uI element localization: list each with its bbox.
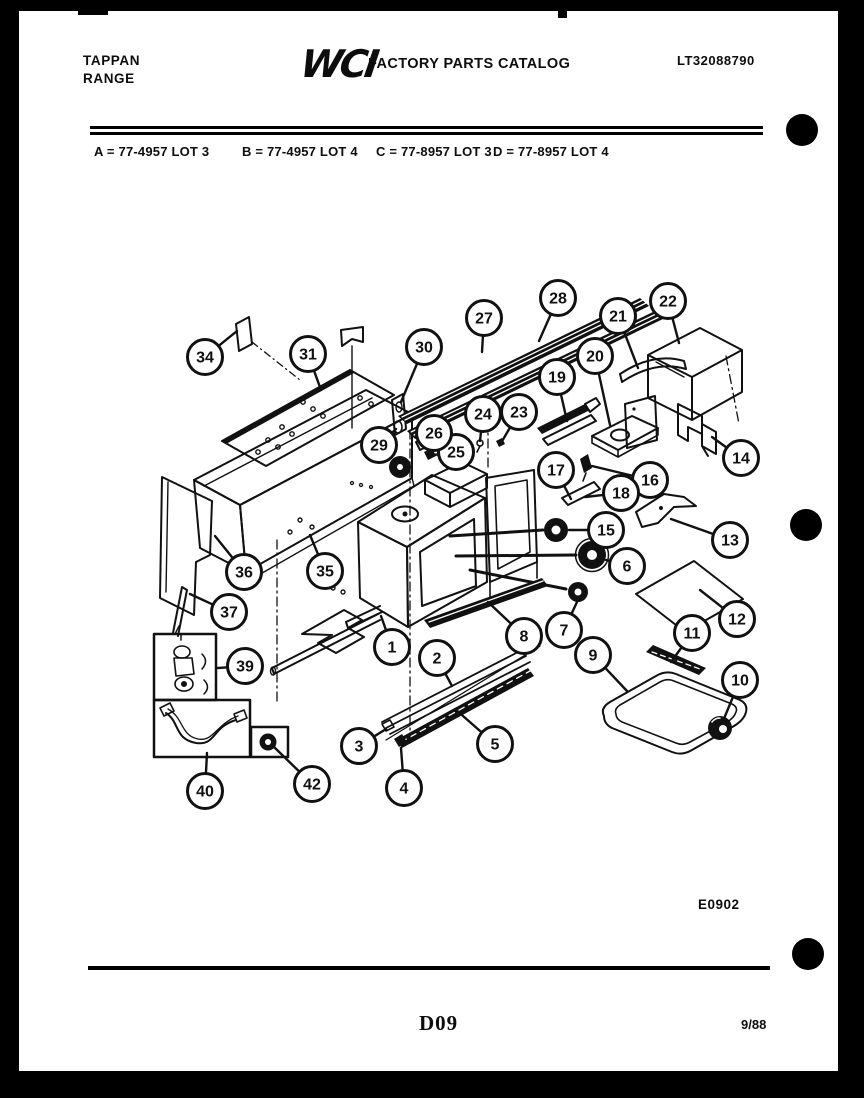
callout-leader-9 — [605, 668, 627, 691]
bracket-20 — [592, 396, 658, 457]
callout-leader-4 — [401, 748, 403, 771]
svg-text:42: 42 — [303, 777, 321, 794]
svg-text:14: 14 — [732, 451, 750, 468]
svg-text:4: 4 — [400, 781, 409, 798]
svg-text:2: 2 — [433, 651, 442, 668]
svg-text:36: 36 — [235, 565, 253, 582]
bolt-16 — [580, 454, 592, 481]
callout-leader-8 — [488, 602, 511, 624]
figure-code: E0902 — [698, 897, 740, 912]
catalog-page: TAPPAN RANGE WCI FACTORY PARTS CATALOG L… — [0, 0, 864, 1098]
callout-leader-36 — [215, 536, 233, 558]
callout-35: 35 — [308, 554, 343, 589]
callout-8: 8 — [507, 619, 542, 654]
callout-21: 21 — [601, 299, 636, 334]
callout-4: 4 — [387, 771, 422, 806]
svg-text:11: 11 — [684, 626, 701, 643]
inset-box-40 — [154, 700, 250, 757]
callout-30: 30 — [407, 330, 442, 365]
callout-14: 14 — [724, 441, 759, 476]
callout-26: 26 — [417, 416, 452, 451]
callout-leader-40 — [206, 753, 207, 774]
callout-3: 3 — [342, 729, 377, 764]
callout-leader-10 — [723, 696, 733, 721]
footer-rule — [88, 966, 770, 970]
callout-leader-21 — [624, 332, 638, 368]
svg-text:28: 28 — [549, 291, 567, 308]
callout-leader-23 — [501, 427, 510, 443]
svg-text:22: 22 — [659, 294, 677, 311]
inset-box-42 — [251, 727, 288, 757]
callout-leader-14 — [712, 437, 727, 448]
callout-leader-20 — [599, 373, 610, 425]
callout-18: 18 — [604, 476, 639, 511]
svg-text:13: 13 — [721, 533, 739, 550]
svg-text:3: 3 — [355, 739, 364, 756]
callout-leader-13 — [671, 519, 714, 534]
callout-27: 27 — [467, 301, 502, 336]
callout-15: 15 — [589, 513, 624, 548]
callout-31: 31 — [291, 337, 326, 372]
callout-22: 22 — [651, 284, 686, 319]
svg-text:29: 29 — [370, 438, 388, 455]
svg-text:40: 40 — [196, 784, 214, 801]
callout-1: 1 — [375, 630, 410, 665]
callout-leader-34 — [219, 331, 237, 346]
callout-34: 34 — [188, 340, 223, 375]
callout-39: 39 — [228, 649, 263, 684]
svg-text:20: 20 — [586, 349, 604, 366]
svg-text:25: 25 — [447, 445, 465, 462]
callout-23: 23 — [502, 395, 537, 430]
callout-leader-28 — [539, 314, 551, 341]
svg-text:17: 17 — [547, 463, 565, 480]
bracket-13 — [636, 494, 696, 527]
curved-bracket-21 — [620, 358, 686, 382]
svg-text:35: 35 — [316, 564, 334, 581]
svg-text:39: 39 — [236, 659, 254, 676]
svg-text:8: 8 — [520, 629, 529, 646]
svg-text:19: 19 — [548, 370, 566, 387]
svg-text:7: 7 — [560, 623, 569, 640]
callout-leader-3 — [374, 729, 386, 737]
callout-leader-5 — [455, 709, 482, 732]
date-code: 9/88 — [741, 1017, 766, 1032]
svg-text:23: 23 — [510, 405, 528, 422]
callout-leader-12 — [700, 590, 723, 608]
callout-11: 11 — [675, 616, 710, 651]
svg-text:31: 31 — [299, 347, 317, 364]
svg-text:6: 6 — [623, 559, 632, 576]
callout-leader-7 — [571, 602, 577, 614]
box-22 — [648, 328, 742, 420]
callout-2: 2 — [420, 641, 455, 676]
inset-box-39 — [154, 634, 216, 700]
svg-text:34: 34 — [196, 350, 214, 367]
burner-box-1 — [346, 462, 487, 628]
svg-text:16: 16 — [641, 473, 659, 490]
svg-text:1: 1 — [388, 640, 397, 657]
svg-text:10: 10 — [731, 673, 749, 690]
bottom-rails — [382, 650, 534, 748]
callout-leader-27 — [482, 335, 483, 352]
callout-20: 20 — [578, 339, 613, 374]
callout-28: 28 — [541, 281, 576, 316]
callout-13: 13 — [713, 523, 748, 558]
callout-12: 12 — [720, 602, 755, 637]
svg-text:37: 37 — [220, 605, 238, 622]
exploded-view-diagram: 1234567891011121314151617181920212223242… — [0, 0, 864, 1098]
svg-text:9: 9 — [589, 648, 598, 665]
svg-text:30: 30 — [415, 340, 433, 357]
callout-leader-1 — [381, 616, 386, 631]
svg-text:24: 24 — [474, 407, 492, 424]
callout-leader-42 — [272, 745, 299, 772]
svg-text:27: 27 — [475, 311, 493, 328]
cap-10 — [708, 716, 732, 740]
callout-9: 9 — [576, 638, 611, 673]
callout-40: 40 — [188, 774, 223, 809]
callout-17: 17 — [539, 453, 574, 488]
callout-24: 24 — [466, 397, 501, 432]
callout-6: 6 — [610, 549, 645, 584]
page-code: D09 — [419, 1011, 458, 1036]
svg-text:26: 26 — [425, 426, 443, 443]
callout-leader-2 — [445, 673, 452, 686]
callout-42: 42 — [295, 767, 330, 802]
svg-text:12: 12 — [728, 612, 746, 629]
callout-10: 10 — [723, 663, 758, 698]
svg-text:5: 5 — [491, 737, 500, 754]
callout-7: 7 — [547, 613, 582, 648]
callout-37: 37 — [212, 595, 247, 630]
svg-text:15: 15 — [597, 523, 615, 540]
callout-leader-22 — [672, 318, 679, 343]
callout-36: 36 — [227, 555, 262, 590]
rail-19 — [537, 398, 600, 445]
callout-19: 19 — [540, 360, 575, 395]
bracket-14 — [678, 404, 716, 456]
callout-29: 29 — [362, 428, 397, 463]
callout-leader-30 — [401, 363, 417, 402]
svg-text:18: 18 — [612, 486, 630, 503]
console-box-35 — [194, 390, 414, 594]
callout-5: 5 — [478, 727, 513, 762]
callout-leader-16 — [592, 466, 633, 476]
svg-text:21: 21 — [609, 309, 627, 326]
